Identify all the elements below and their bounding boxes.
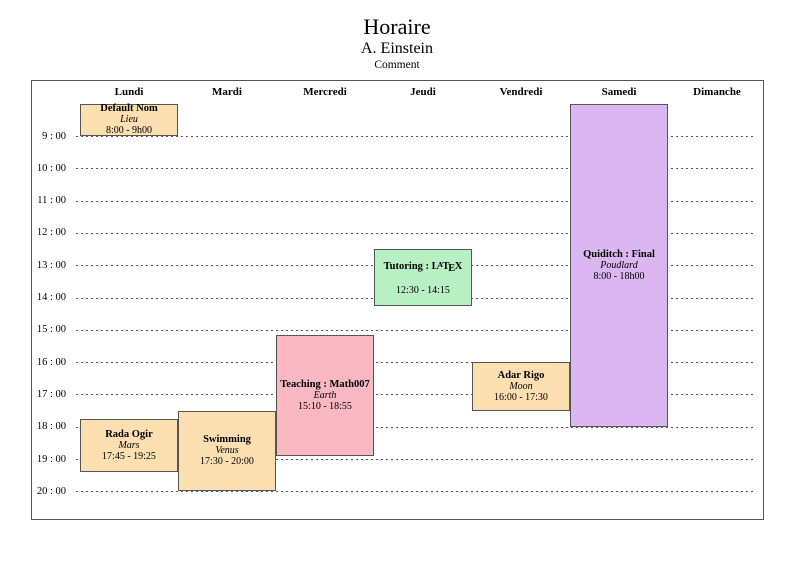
- hour-label: 9 : 00: [32, 130, 66, 143]
- event-title: Rada Ogir: [105, 429, 153, 440]
- event-location: Poudlard: [600, 260, 637, 271]
- hour-label: 16 : 00: [32, 356, 66, 369]
- schedule-grid: LundiMardiMercrediJeudiVendrediSamediDim…: [31, 80, 764, 520]
- event-time: 8:00 - 9h00: [106, 125, 152, 136]
- event-block-default-nom: Default NomLieu8:00 - 9h00: [80, 104, 178, 136]
- day-header-dimanche: Dimanche: [668, 86, 766, 98]
- event-title: Teaching : Math007: [280, 379, 369, 390]
- hour-label: 10 : 00: [32, 162, 66, 175]
- event-block-teaching-math007: Teaching : Math007Earth15:10 - 18:55: [276, 335, 374, 456]
- event-block-quiditch-final: Quiditch : FinalPoudlard8:00 - 18h00: [570, 104, 668, 427]
- day-header-jeudi: Jeudi: [374, 86, 472, 98]
- event-time: 17:45 - 19:25: [102, 451, 156, 462]
- day-header-mardi: Mardi: [178, 86, 276, 98]
- hour-label: 20 : 00: [32, 485, 66, 498]
- event-time: 17:30 - 20:00: [200, 456, 254, 467]
- hour-label: 14 : 00: [32, 291, 66, 304]
- event-block-rada-ogir: Rada OgirMars17:45 - 19:25: [80, 419, 178, 473]
- event-time: 16:00 - 17:30: [494, 392, 548, 403]
- event-block-swimming: SwimmingVenus17:30 - 20:00: [178, 411, 276, 492]
- event-block-adar-rigo: Adar RigoMoon16:00 - 17:30: [472, 362, 570, 410]
- document-header: Horaire A. Einstein Comment: [0, 14, 794, 72]
- event-title: Quiditch : Final: [583, 249, 655, 260]
- event-location: Venus: [215, 445, 238, 456]
- page-comment: Comment: [0, 58, 794, 72]
- event-location: Lieu: [120, 114, 138, 125]
- page-author: A. Einstein: [0, 39, 794, 58]
- hour-gridline: [76, 491, 756, 492]
- day-header-lundi: Lundi: [80, 86, 178, 98]
- event-time: 12:30 - 14:15: [396, 285, 450, 296]
- event-title-prefix: Tutoring :: [384, 261, 432, 272]
- schedule-page: Horaire A. Einstein Comment LundiMardiMe…: [0, 0, 794, 561]
- day-header-samedi: Samedi: [570, 86, 668, 98]
- day-header-mercredi: Mercredi: [276, 86, 374, 98]
- hour-label: 13 : 00: [32, 259, 66, 272]
- hour-label: 19 : 00: [32, 453, 66, 466]
- hour-label: 12 : 00: [32, 226, 66, 239]
- hour-label: 17 : 00: [32, 388, 66, 401]
- hour-label: 18 : 00: [32, 420, 66, 433]
- event-time: 15:10 - 18:55: [298, 401, 352, 412]
- event-location: Mars: [118, 440, 139, 451]
- hour-label: 11 : 00: [32, 194, 66, 207]
- day-header-vendredi: Vendredi: [472, 86, 570, 98]
- hour-label: 15 : 00: [32, 323, 66, 336]
- event-title: Adar Rigo: [498, 370, 545, 381]
- event-block-tutoring-latex: Tutoring : LATEX12:30 - 14:15: [374, 249, 472, 306]
- event-location: Earth: [314, 390, 337, 401]
- event-time: 8:00 - 18h00: [593, 271, 644, 282]
- event-location: Moon: [509, 381, 532, 392]
- latex-logo-letter: X: [455, 261, 463, 272]
- latex-logo: LATEX: [432, 261, 463, 272]
- page-title: Horaire: [0, 14, 794, 39]
- event-title: Default Nom: [100, 103, 157, 114]
- event-title: Tutoring : LATEX: [384, 259, 463, 274]
- event-title: Swimming: [203, 434, 251, 445]
